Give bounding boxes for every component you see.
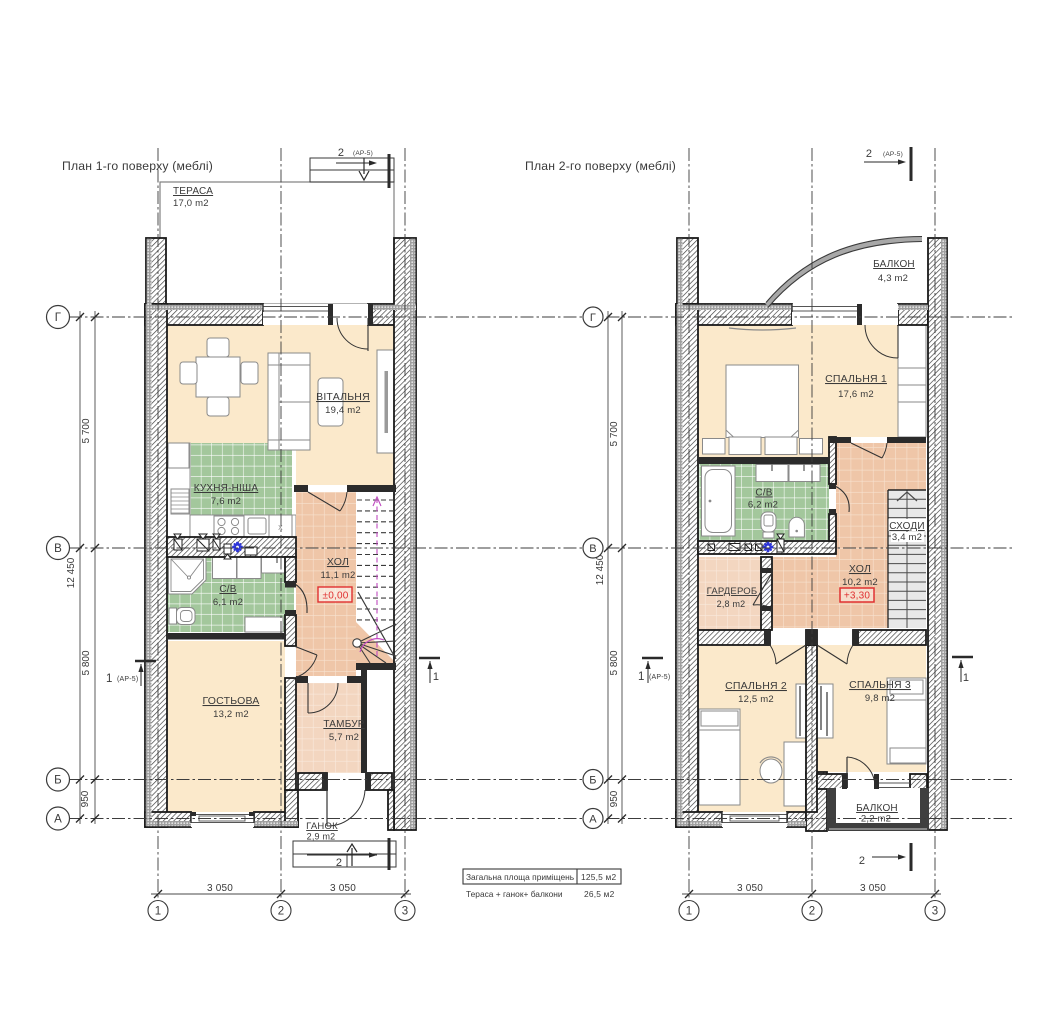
- svg-text:ГАНОК: ГАНОК: [306, 821, 338, 832]
- svg-text:11,1 m2: 11,1 m2: [320, 570, 355, 581]
- svg-text:ХОЛ: ХОЛ: [849, 563, 871, 575]
- svg-text:Загальна площа приміщень: Загальна площа приміщень: [466, 872, 575, 882]
- svg-text:3: 3: [402, 906, 409, 918]
- svg-text:(АР-5): (АР-5): [353, 150, 373, 157]
- svg-text:2: 2: [866, 148, 872, 160]
- svg-text:С/В: С/В: [755, 488, 772, 499]
- svg-text:13,2 m2: 13,2 m2: [213, 709, 249, 720]
- svg-text:Г: Г: [590, 312, 596, 324]
- svg-text:План 1-го поверху (меблі): План 1-го поверху (меблі): [62, 159, 213, 173]
- svg-text:1: 1: [686, 906, 693, 918]
- svg-text:План 2-го поверху (меблі): План 2-го поверху (меблі): [525, 159, 676, 173]
- svg-text:ГОСТЬОВА: ГОСТЬОВА: [203, 695, 260, 707]
- svg-text:А: А: [54, 814, 62, 826]
- svg-text:5 700: 5 700: [81, 418, 92, 443]
- svg-text:В: В: [54, 543, 62, 555]
- svg-text:1: 1: [433, 671, 439, 683]
- svg-text:2: 2: [809, 906, 816, 918]
- svg-text:5 800: 5 800: [609, 650, 620, 675]
- svg-text:ХОЛ: ХОЛ: [327, 556, 349, 568]
- svg-text:3,4 m2: 3,4 m2: [892, 532, 922, 543]
- svg-text:СПАЛЬНЯ 1: СПАЛЬНЯ 1: [825, 373, 887, 385]
- svg-text:1: 1: [638, 671, 645, 683]
- svg-text:Тераса + ганок+ балкони: Тераса + ганок+ балкони: [466, 889, 563, 899]
- svg-text:Б: Б: [589, 775, 596, 787]
- svg-text:2,9 m2: 2,9 m2: [307, 832, 336, 842]
- svg-text:2,8 m2: 2,8 m2: [717, 599, 746, 609]
- svg-text:2: 2: [278, 906, 285, 918]
- svg-text:СХОДИ: СХОДИ: [889, 521, 925, 532]
- svg-text:2,2 m2: 2,2 m2: [861, 814, 891, 825]
- svg-text:1: 1: [963, 672, 969, 684]
- svg-text:Б: Б: [54, 775, 62, 787]
- svg-text:19,4 m2: 19,4 m2: [325, 405, 361, 416]
- svg-text:5 700: 5 700: [609, 421, 620, 446]
- svg-text:2: 2: [336, 857, 342, 869]
- svg-text:КУХНЯ-НІША: КУХНЯ-НІША: [194, 483, 259, 494]
- svg-text:7,6 m2: 7,6 m2: [211, 496, 241, 507]
- svg-text:Г: Г: [55, 312, 62, 324]
- svg-text:3 050: 3 050: [330, 883, 356, 894]
- svg-text:17,0 m2: 17,0 m2: [173, 198, 209, 209]
- svg-text:±0,00: ±0,00: [323, 591, 349, 602]
- svg-text:(АР-5): (АР-5): [117, 676, 138, 683]
- svg-text:СПАЛЬНЯ 3: СПАЛЬНЯ 3: [849, 679, 911, 691]
- svg-text:ТАМБУР: ТАМБУР: [323, 719, 364, 730]
- svg-text:СПАЛЬНЯ 2: СПАЛЬНЯ 2: [725, 680, 787, 692]
- svg-text:26,5 м2: 26,5 м2: [584, 889, 615, 899]
- svg-text:(АР-5): (АР-5): [883, 151, 903, 158]
- svg-text:А: А: [589, 814, 597, 826]
- svg-text:2: 2: [338, 147, 344, 159]
- svg-text:12 450: 12 450: [66, 557, 77, 588]
- svg-text:(АР-5): (АР-5): [649, 674, 670, 681]
- svg-text:БАЛКОН: БАЛКОН: [856, 803, 898, 814]
- svg-text:+3,30: +3,30: [844, 591, 871, 602]
- svg-text:10,2 m2: 10,2 m2: [842, 577, 878, 588]
- svg-text:12 450: 12 450: [595, 554, 606, 585]
- svg-text:1: 1: [155, 906, 162, 918]
- svg-text:3 050: 3 050: [860, 883, 886, 894]
- svg-text:В: В: [589, 543, 597, 555]
- svg-text:3 050: 3 050: [207, 883, 233, 894]
- svg-text:4,3 m2: 4,3 m2: [878, 273, 908, 284]
- svg-text:950: 950: [80, 790, 91, 807]
- svg-text:3 050: 3 050: [737, 883, 763, 894]
- svg-text:6,1 m2: 6,1 m2: [213, 597, 243, 608]
- svg-text:5 800: 5 800: [81, 650, 92, 675]
- svg-text:6,2 m2: 6,2 m2: [748, 500, 778, 511]
- svg-text:ВІТАЛЬНЯ: ВІТАЛЬНЯ: [316, 391, 370, 403]
- svg-text:17,6 m2: 17,6 m2: [838, 389, 874, 400]
- svg-text:С/В: С/В: [219, 584, 236, 595]
- svg-text:3: 3: [932, 906, 939, 918]
- svg-text:ТЕРАСА: ТЕРАСА: [173, 186, 213, 197]
- svg-text:9,8 m2: 9,8 m2: [865, 693, 895, 704]
- svg-text:125,5 м2: 125,5 м2: [581, 872, 616, 882]
- svg-text:12,5 m2: 12,5 m2: [738, 694, 774, 705]
- svg-text:5,7 m2: 5,7 m2: [329, 732, 359, 743]
- svg-text:2: 2: [859, 855, 865, 867]
- svg-text:950: 950: [609, 790, 620, 807]
- svg-text:БАЛКОН: БАЛКОН: [873, 259, 915, 270]
- svg-text:1: 1: [106, 673, 113, 685]
- svg-text:ГАРДЕРОБ: ГАРДЕРОБ: [707, 586, 758, 597]
